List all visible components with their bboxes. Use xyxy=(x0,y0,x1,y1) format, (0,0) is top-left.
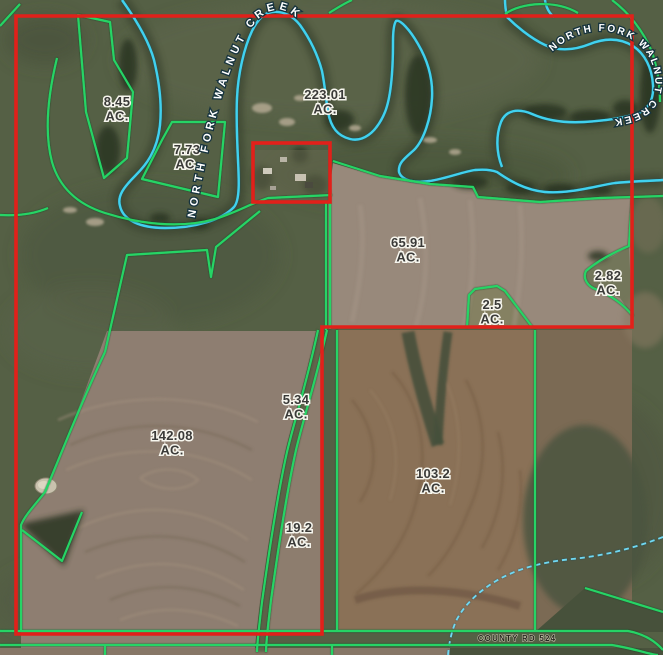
farmstead-buildings xyxy=(255,150,328,200)
parcel-19-2-label: 19.2AC. xyxy=(286,520,313,550)
parcel-2-5-label: 2.5AC. xyxy=(480,297,503,327)
road-name-label: COUNTY RD 524 xyxy=(478,634,557,643)
aerial-map-canvas[interactable]: 8.45AC.7.73AC.223.01AC.65.91AC.2.82AC.2.… xyxy=(0,0,663,655)
parcel-2-82-label: 2.82AC. xyxy=(595,268,622,298)
satellite-map: 8.45AC.7.73AC.223.01AC.65.91AC.2.82AC.2.… xyxy=(0,0,663,655)
parcel-5-34-label: 5.34AC. xyxy=(283,392,310,422)
parcel-8-45-label: 8.45AC. xyxy=(104,94,131,124)
